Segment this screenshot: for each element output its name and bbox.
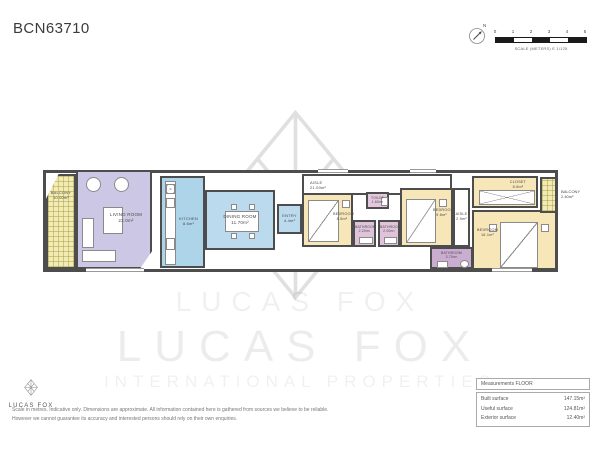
room-bedroom-1: BEDROOM8.5m² xyxy=(302,193,353,247)
room-toilet: TOILET1.60m² xyxy=(366,192,389,209)
scale-tick: 1 xyxy=(512,29,515,34)
chair-icon xyxy=(249,233,255,239)
room-label: AISLE21.00m² xyxy=(310,180,326,190)
armchair-icon xyxy=(114,177,129,192)
sofa-icon xyxy=(82,218,94,248)
scale-tick: 3 xyxy=(548,29,551,34)
room-bathroom-3: BATHROOM3.70m² xyxy=(430,247,473,269)
scale-tick: 2 xyxy=(530,29,533,34)
sink-icon xyxy=(359,237,373,244)
room-entry: ENTRY4.4m² xyxy=(277,204,302,234)
toilet-fixture-icon xyxy=(460,260,469,268)
room-label: BALCONY10.00m² xyxy=(48,190,74,200)
armchair-icon xyxy=(86,177,101,192)
measurement-row: Exterior surface 12.40m² xyxy=(481,414,585,424)
nightstand-icon xyxy=(342,200,350,208)
room-aisle-2: AISLE2.9m² xyxy=(453,188,470,247)
watermark-brand-large: LUCAS FOX xyxy=(0,322,600,372)
nightstand-icon xyxy=(541,224,549,232)
measurement-value: 147.15m² xyxy=(564,395,585,405)
room-bathroom-2: BATHROOM2.00m² xyxy=(378,220,400,247)
appliance-icon xyxy=(166,198,175,208)
room-label: BATHROOM3.70m² xyxy=(432,251,471,260)
scale-caption: SCALE (METERS) E 1/125 xyxy=(481,46,600,51)
chair-icon xyxy=(249,204,255,210)
room-bathroom-1: BATHROOM2.20m² xyxy=(353,220,376,247)
room-kitchen: KITCHEN8.6m² xyxy=(160,176,205,268)
scale-bar-segments xyxy=(495,37,587,43)
room-dining: DINING ROOM11.70m² xyxy=(205,190,275,250)
room-label: CLOSET8.6m² xyxy=(505,180,531,190)
room-label: BATHROOM2.20m² xyxy=(355,225,374,234)
wardrobe-icon xyxy=(479,190,535,205)
north-label: N xyxy=(483,23,486,28)
window xyxy=(492,268,532,272)
lucasfox-logo-icon xyxy=(24,379,38,396)
disclaimer: Scale in metres. Indicative only. Dimens… xyxy=(12,406,452,423)
room-living: LIVING ROOM22.0m² xyxy=(76,170,152,269)
measurement-label: Built surface xyxy=(481,395,509,405)
room-label: ENTRY4.4m² xyxy=(279,213,300,223)
measurement-row: Built surface 147.15m² xyxy=(481,395,585,405)
window xyxy=(410,169,436,173)
room-balcony-right xyxy=(540,177,557,213)
measurements-rows: Built surface 147.15m² Useful surface 12… xyxy=(476,392,590,427)
room-label-balcony-right: BALCONY2.40m² xyxy=(561,189,580,199)
chair-icon xyxy=(231,233,237,239)
chair-icon xyxy=(231,204,237,210)
page-title: BCN63710 xyxy=(13,20,90,37)
room-bedroom-2: BEDROOM9.6m² xyxy=(400,188,453,247)
bed-icon xyxy=(500,222,538,268)
window xyxy=(318,169,348,173)
bed-icon xyxy=(406,199,436,243)
measurement-value: 124.81m² xyxy=(564,405,585,415)
disclaimer-line-2: However we cannot guarantee its accuracy… xyxy=(12,415,452,424)
room-closet: CLOSET8.6m² xyxy=(472,176,538,208)
sink-icon xyxy=(384,237,397,244)
room-label: LIVING ROOM22.0m² xyxy=(102,212,150,224)
measurement-row: Useful surface 124.81m² xyxy=(481,405,585,415)
window xyxy=(86,268,144,272)
room-label: BEDROOM9.6m² xyxy=(433,208,450,218)
footer-brand: LUCAS FOX xyxy=(8,379,54,409)
room-label: BEDROOM16.1m² xyxy=(476,228,499,238)
north-compass-icon xyxy=(467,25,487,45)
nightstand-icon xyxy=(439,199,447,207)
scale-bar: 0 1 2 3 4 5 SCALE (METERS) E 1/125 xyxy=(495,29,587,53)
sofa-icon xyxy=(82,250,116,262)
appliance-icon xyxy=(166,184,175,194)
room-label: TOILET1.60m² xyxy=(368,196,387,205)
scale-tick: 0 xyxy=(494,29,497,34)
scale-tick: 5 xyxy=(584,29,587,34)
measurement-label: Exterior surface xyxy=(481,414,516,424)
room-label: KITCHEN8.6m² xyxy=(174,216,203,226)
room-label: AISLE2.9m² xyxy=(455,212,468,222)
measurement-label: Useful surface xyxy=(481,405,513,415)
scale-tick: 4 xyxy=(566,29,569,34)
room-bedroom-3: BEDROOM16.1m² xyxy=(472,210,557,270)
room-label: BEDROOM8.5m² xyxy=(333,212,351,222)
room-label: BATHROOM2.00m² xyxy=(380,225,398,234)
measurements-box: Measurements FLOOR Built surface 147.15m… xyxy=(476,378,590,427)
measurements-header: Measurements FLOOR xyxy=(476,378,590,390)
disclaimer-line-1: Scale in metres. Indicative only. Dimens… xyxy=(12,406,452,415)
sink-icon xyxy=(437,261,448,268)
sink-icon xyxy=(166,238,175,250)
floorplan-page: BCN63710 N 0 1 2 3 4 5 SCALE (METERS) E … xyxy=(0,0,600,450)
measurement-value: 12.40m² xyxy=(567,414,585,424)
room-label: DINING ROOM11.70m² xyxy=(207,214,273,226)
